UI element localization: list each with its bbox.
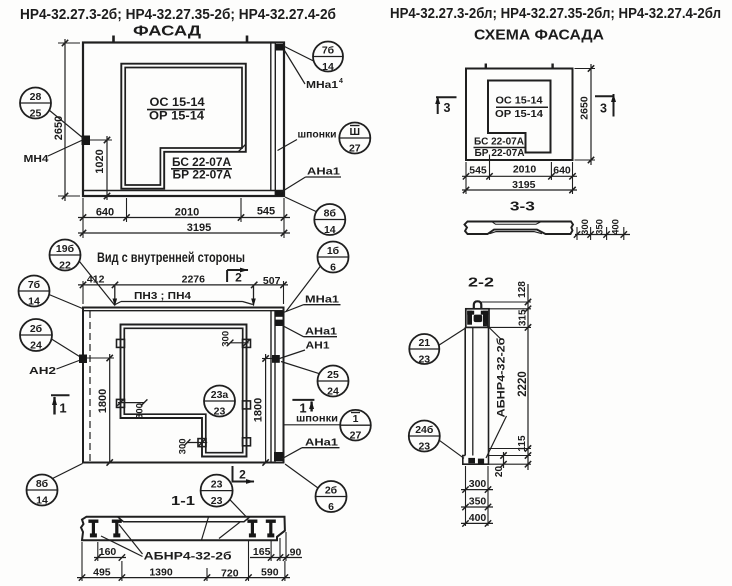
svg-text:Вид с внутренней стороны: Вид с внутренней стороны bbox=[97, 249, 245, 265]
svg-text:6: 6 bbox=[328, 501, 334, 513]
svg-text:507: 507 bbox=[263, 275, 281, 287]
svg-text:7б: 7б bbox=[322, 45, 335, 57]
svg-text:АБНР4-32-2б: АБНР4-32-2б bbox=[496, 337, 508, 417]
svg-text:350: 350 bbox=[595, 219, 606, 235]
svg-text:ОР 15-14: ОР 15-14 bbox=[495, 109, 543, 120]
svg-text:Ш: Ш bbox=[350, 126, 361, 138]
svg-text:24б: 24б bbox=[415, 424, 434, 436]
svg-text:2: 2 bbox=[239, 468, 246, 482]
svg-text:21: 21 bbox=[418, 337, 430, 349]
svg-text:1: 1 bbox=[353, 413, 359, 425]
svg-text:24: 24 bbox=[327, 386, 339, 398]
svg-text:МН4: МН4 bbox=[24, 153, 49, 165]
svg-text:НР4-32.27.3-2бл; НР4-32.27.35-: НР4-32.27.3-2бл; НР4-32.27.35-2бл; НР4-3… bbox=[390, 6, 721, 22]
svg-text:2220: 2220 bbox=[517, 371, 529, 397]
svg-text:ОС 15-14: ОС 15-14 bbox=[496, 96, 543, 107]
svg-text:545: 545 bbox=[469, 165, 487, 177]
svg-text:23: 23 bbox=[214, 406, 226, 418]
svg-text:1800: 1800 bbox=[97, 389, 109, 413]
svg-text:6: 6 bbox=[330, 262, 336, 274]
svg-text:АНа1: АНа1 bbox=[305, 437, 338, 449]
svg-text:400: 400 bbox=[469, 512, 487, 524]
svg-text:14: 14 bbox=[322, 61, 334, 73]
svg-text:2010: 2010 bbox=[513, 164, 537, 176]
svg-text:3195: 3195 bbox=[512, 179, 536, 191]
svg-text:23: 23 bbox=[418, 441, 430, 453]
svg-text:165: 165 bbox=[253, 546, 271, 558]
svg-text:3: 3 bbox=[444, 101, 451, 115]
svg-text:2276: 2276 bbox=[182, 274, 206, 286]
svg-text:27: 27 bbox=[349, 143, 361, 155]
svg-text:128: 128 bbox=[517, 281, 528, 298]
svg-text:1800: 1800 bbox=[252, 398, 264, 422]
svg-text:шпонки: шпонки bbox=[296, 413, 338, 425]
svg-text:22: 22 bbox=[59, 260, 71, 272]
svg-text:3-3: 3-3 bbox=[510, 200, 535, 214]
svg-text:БС 22-07А: БС 22-07А bbox=[474, 137, 524, 148]
svg-text:300: 300 bbox=[220, 331, 231, 347]
svg-text:2: 2 bbox=[235, 271, 242, 285]
svg-text:23: 23 bbox=[211, 479, 223, 491]
svg-text:300: 300 bbox=[177, 438, 188, 454]
svg-text:24: 24 bbox=[30, 340, 42, 352]
svg-text:ОС 15-14: ОС 15-14 bbox=[150, 95, 205, 109]
svg-text:ОР 15-14: ОР 15-14 bbox=[149, 109, 204, 123]
svg-text:14: 14 bbox=[324, 224, 336, 236]
svg-text:шпонки: шпонки bbox=[298, 129, 337, 141]
svg-text:412: 412 bbox=[87, 274, 105, 286]
svg-text:300: 300 bbox=[580, 219, 591, 235]
svg-text:350: 350 bbox=[469, 496, 487, 508]
svg-text:МНа1: МНа1 bbox=[306, 79, 338, 91]
svg-text:19б: 19б bbox=[56, 243, 75, 255]
svg-text:БР 22-07А: БР 22-07А bbox=[173, 168, 232, 182]
svg-text:640: 640 bbox=[553, 165, 571, 177]
svg-text:МНа1: МНа1 bbox=[305, 294, 339, 306]
svg-text:2б: 2б bbox=[325, 485, 338, 497]
svg-text:300: 300 bbox=[469, 478, 487, 490]
svg-text:ФАСАД: ФАСАД bbox=[133, 23, 201, 40]
svg-text:4: 4 bbox=[339, 78, 343, 85]
svg-text:300: 300 bbox=[134, 403, 145, 419]
svg-text:АН1: АН1 bbox=[306, 340, 330, 352]
svg-text:7б: 7б bbox=[28, 279, 41, 291]
svg-text:20: 20 bbox=[494, 466, 505, 478]
svg-text:23: 23 bbox=[211, 495, 223, 507]
svg-text:640: 640 bbox=[96, 207, 114, 219]
svg-text:2010: 2010 bbox=[175, 207, 199, 219]
svg-text:545: 545 bbox=[257, 206, 275, 218]
svg-text:115: 115 bbox=[517, 435, 528, 452]
svg-text:НР4-32.27.3-2б; НР4-32.27.35-2: НР4-32.27.3-2б; НР4-32.27.35-2б; НР4-32.… bbox=[20, 7, 336, 23]
svg-text:ПН3 ; ПН4: ПН3 ; ПН4 bbox=[134, 290, 191, 302]
svg-text:590: 590 bbox=[261, 567, 279, 579]
svg-text:28: 28 bbox=[30, 91, 42, 103]
svg-text:14: 14 bbox=[36, 495, 48, 507]
svg-text:1390: 1390 bbox=[149, 567, 173, 579]
svg-text:1020: 1020 bbox=[94, 149, 106, 173]
svg-text:720: 720 bbox=[221, 568, 239, 580]
svg-text:90: 90 bbox=[290, 547, 302, 559]
svg-text:АНа1: АНа1 bbox=[305, 326, 337, 338]
svg-text:БР 22-07А: БР 22-07А bbox=[475, 148, 525, 159]
svg-text:2650: 2650 bbox=[53, 116, 65, 140]
svg-text:27: 27 bbox=[350, 430, 362, 442]
svg-text:2650: 2650 bbox=[579, 96, 591, 120]
svg-text:315: 315 bbox=[517, 309, 528, 326]
svg-text:25: 25 bbox=[327, 369, 339, 381]
svg-text:1б: 1б bbox=[327, 245, 340, 257]
svg-text:23а: 23а bbox=[211, 389, 229, 401]
svg-text:СХЕМА ФАСАДА: СХЕМА ФАСАДА bbox=[474, 27, 604, 44]
svg-text:495: 495 bbox=[93, 567, 111, 579]
svg-text:АНа1: АНа1 bbox=[307, 166, 340, 178]
svg-text:АН2: АН2 bbox=[29, 365, 56, 377]
svg-text:160: 160 bbox=[99, 546, 117, 558]
svg-text:400: 400 bbox=[611, 219, 622, 235]
svg-text:25: 25 bbox=[30, 108, 42, 120]
svg-text:8б: 8б bbox=[36, 478, 49, 490]
svg-text:1-1: 1-1 bbox=[171, 493, 195, 508]
svg-text:2б: 2б bbox=[30, 323, 43, 335]
svg-text:3195: 3195 bbox=[187, 222, 211, 234]
svg-text:14: 14 bbox=[28, 296, 40, 308]
svg-text:8б: 8б bbox=[324, 208, 337, 220]
svg-text:3: 3 bbox=[600, 102, 607, 116]
svg-text:1: 1 bbox=[59, 401, 66, 416]
svg-text:23: 23 bbox=[418, 354, 430, 366]
svg-text:АБНР4-32-2б: АБНР4-32-2б bbox=[144, 551, 232, 563]
svg-text:2-2: 2-2 bbox=[468, 275, 494, 290]
